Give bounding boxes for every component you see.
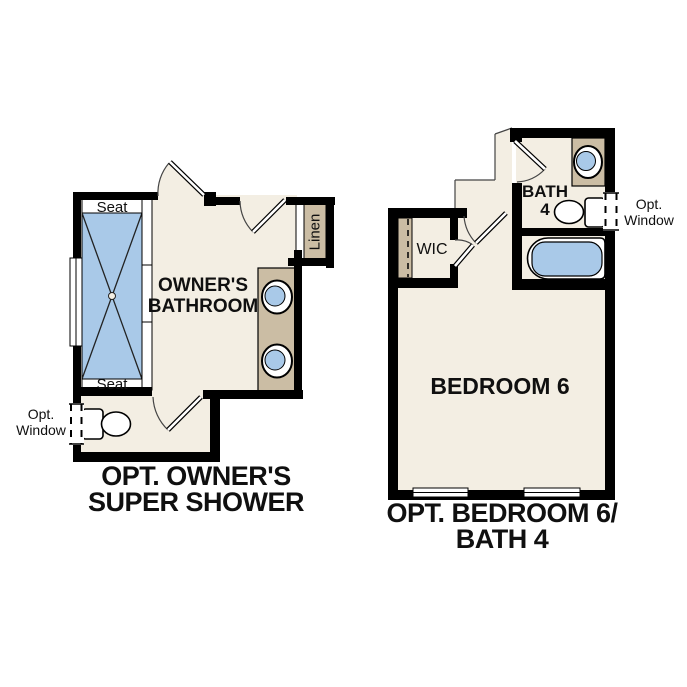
opt-window-label-left: Opt. Window: [16, 406, 66, 438]
toilet-tank: [585, 198, 605, 227]
owners-bathroom-label: OWNER'S BATHROOM: [148, 275, 258, 317]
wic-label: WIC: [416, 241, 447, 259]
sink-bowl: [265, 286, 285, 306]
opt-window-label-right: Opt. Window: [624, 196, 674, 228]
shower-drain: [109, 293, 116, 300]
linen-label: Linen: [307, 214, 324, 251]
bath4-label: BATH 4: [522, 183, 568, 219]
window: [70, 258, 82, 346]
tub-basin: [532, 242, 602, 276]
shower-seat-bottom-label: Seat: [97, 376, 128, 393]
shower-seat-top-label: Seat: [97, 199, 128, 216]
double-sink-vanity: [258, 268, 295, 393]
bath-door-pad: [495, 128, 512, 183]
left-plan-caption: OPT. OWNER'S SUPER SHOWER: [88, 463, 304, 515]
walk-in-closet: [398, 218, 412, 278]
right-plan: [388, 128, 619, 500]
bedroom6-label: BEDROOM 6: [430, 373, 569, 400]
floorplan-page: Seat Seat OWNER'S BATHROOM Linen Opt. Wi…: [0, 0, 687, 687]
toilet-tank: [82, 409, 103, 439]
shower-with-seats: [82, 198, 152, 392]
bathtub: [528, 238, 606, 279]
sink-bowl: [577, 152, 596, 171]
floorplan-drawing: [0, 0, 687, 687]
right-plan-caption: OPT. BEDROOM 6/ BATH 4: [386, 500, 617, 552]
sink-bowl: [265, 350, 285, 370]
optional-window: [69, 403, 84, 445]
toilet-bowl: [102, 412, 131, 436]
sink-vanity: [572, 138, 605, 186]
optional-window: [603, 192, 619, 231]
